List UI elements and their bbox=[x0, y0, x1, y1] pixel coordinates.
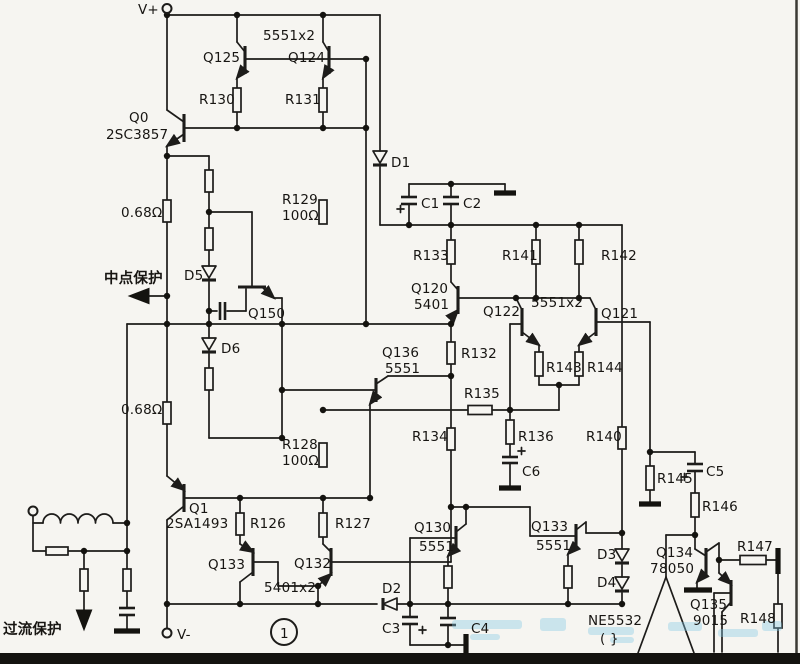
resistor-bias2-symbol bbox=[205, 228, 213, 250]
label-c5: C5 bbox=[706, 464, 724, 480]
label-r126: R126 bbox=[250, 516, 286, 532]
label-r134: R134 bbox=[412, 429, 448, 445]
resistor-r147-symbol bbox=[740, 556, 766, 565]
amplifier-schematic: V+ Q125 5551x2 Q124 R130 R131 Q0 2SC3857… bbox=[0, 0, 800, 664]
diode-d1-symbol bbox=[373, 151, 387, 165]
label-d4: D4 bbox=[597, 575, 616, 591]
diode-d3-symbol bbox=[615, 549, 629, 563]
label-d6: D6 bbox=[221, 341, 240, 357]
label-q136: Q136 bbox=[382, 345, 419, 361]
label-opamp-pin7: 7 bbox=[650, 561, 659, 577]
capacitor-c2-symbol bbox=[443, 197, 459, 204]
label-r132: R132 bbox=[461, 346, 497, 362]
resistor-q130-emitter-symbol bbox=[444, 566, 452, 588]
label-vminus: V- bbox=[177, 627, 191, 643]
label-opamp: NE5532 bbox=[588, 613, 642, 629]
label-q133-right-type: 5551 bbox=[536, 538, 571, 554]
capacitor-q150-symbol bbox=[220, 302, 225, 320]
label-r129-val: 100Ω bbox=[282, 208, 319, 224]
diode-d4-symbol bbox=[615, 577, 629, 591]
label-r143: R143 bbox=[546, 360, 582, 376]
resistor-output-parallel-symbol bbox=[46, 547, 68, 555]
label-r130: R130 bbox=[199, 92, 235, 108]
label-c6: C6 bbox=[522, 464, 540, 480]
label-q130-type: 5551 bbox=[419, 539, 454, 555]
vplus-terminal bbox=[163, 4, 172, 13]
resistor-r143-symbol bbox=[535, 352, 543, 376]
resistor-r126-symbol bbox=[236, 513, 244, 535]
label-r136: R136 bbox=[518, 429, 554, 445]
label-mirror-type: 5551x2 bbox=[263, 28, 315, 44]
label-r140: R140 bbox=[586, 429, 622, 445]
resistor-overcurrent-symbol bbox=[80, 569, 88, 591]
resistor-r146-symbol bbox=[691, 493, 699, 517]
label-q150: Q150 bbox=[248, 306, 285, 322]
label-q1: Q1 bbox=[189, 501, 209, 517]
label-d5: D5 bbox=[184, 268, 203, 284]
output-terminal bbox=[29, 507, 38, 516]
resistor-r135-symbol bbox=[468, 406, 492, 415]
label-q135: Q135 bbox=[690, 597, 727, 613]
capacitor-c1-symbol bbox=[397, 197, 417, 213]
resistor-bias1-symbol bbox=[205, 170, 213, 192]
label-c1: C1 bbox=[421, 196, 439, 212]
label-pair2-type: 5401x2 bbox=[264, 580, 316, 596]
label-r146: R146 bbox=[702, 499, 738, 515]
label-d1: D1 bbox=[391, 155, 410, 171]
label-q135-type: 9015 bbox=[693, 613, 728, 629]
label-r148: R148 bbox=[740, 611, 776, 627]
label-r135: R135 bbox=[464, 386, 500, 402]
capacitor-c6-symbol bbox=[502, 448, 525, 464]
label-res068-bot: 0.68Ω bbox=[121, 402, 162, 418]
label-c4: C4 bbox=[471, 621, 489, 637]
vminus-terminal bbox=[163, 629, 172, 638]
label-r128: R128 bbox=[282, 437, 318, 453]
capacitor-c3-symbol bbox=[402, 617, 426, 634]
bottom-border-bar bbox=[0, 653, 800, 664]
label-page-marker: 1 bbox=[280, 626, 289, 642]
label-r131: R131 bbox=[285, 92, 321, 108]
resistor-zobel-symbol bbox=[123, 569, 131, 591]
label-overcurrent-protection: 过流保护 bbox=[3, 620, 62, 638]
label-c3: C3 bbox=[382, 621, 400, 637]
label-q0: Q0 bbox=[129, 110, 149, 126]
diode-d6-symbol bbox=[202, 338, 216, 352]
resistor-r128-symbol bbox=[319, 443, 327, 467]
label-q125: Q125 bbox=[203, 50, 240, 66]
label-q133-right: Q133 bbox=[531, 519, 568, 535]
label-vplus: V+ bbox=[138, 2, 159, 18]
label-res068-top: 0.68Ω bbox=[121, 205, 162, 221]
schematic-page: V+ Q125 5551x2 Q124 R130 R131 Q0 2SC3857… bbox=[0, 0, 800, 664]
label-r147: R147 bbox=[737, 539, 773, 555]
label-opamp-sub: ( } bbox=[600, 631, 619, 647]
label-q122: Q122 bbox=[483, 304, 520, 320]
label-d3: D3 bbox=[597, 547, 616, 563]
label-q133-left: Q133 bbox=[208, 557, 245, 573]
label-r128-val: 100Ω bbox=[282, 453, 319, 469]
label-r141: R141 bbox=[502, 248, 538, 264]
label-c2: C2 bbox=[463, 196, 481, 212]
label-d2: D2 bbox=[382, 581, 401, 597]
label-q120-type: 5401 bbox=[414, 297, 449, 313]
label-r145: R145 bbox=[657, 471, 693, 487]
resistor-r132-symbol bbox=[447, 342, 455, 364]
label-r142: R142 bbox=[601, 248, 637, 264]
resistor-r129-symbol bbox=[319, 200, 327, 224]
label-q120: Q120 bbox=[411, 281, 448, 297]
diode-d5-symbol bbox=[202, 266, 216, 280]
resistor-q133-emitter-symbol bbox=[564, 566, 572, 588]
label-q134: Q134 bbox=[656, 545, 693, 561]
label-q132: Q132 bbox=[294, 556, 331, 572]
resistor-068-bottom-symbol bbox=[163, 402, 171, 424]
label-q1-type: 2SA1493 bbox=[166, 516, 228, 532]
label-q130: Q130 bbox=[414, 520, 451, 536]
label-pair-type: 5551x2 bbox=[531, 295, 583, 311]
diode-d2-symbol bbox=[383, 598, 397, 610]
label-r127: R127 bbox=[335, 516, 371, 532]
label-r133: R133 bbox=[413, 248, 449, 264]
resistor-r142-symbol bbox=[575, 240, 583, 264]
capacitor-zobel-symbol bbox=[119, 608, 135, 615]
label-q0-type: 2SC3857 bbox=[106, 127, 168, 143]
label-r129: R129 bbox=[282, 192, 318, 208]
resistor-r127-symbol bbox=[319, 513, 327, 537]
label-midpoint-protection: 中点保护 bbox=[104, 269, 163, 287]
label-q134-type: 8050 bbox=[659, 561, 694, 577]
label-q121: Q121 bbox=[601, 306, 638, 322]
label-r144: R144 bbox=[587, 360, 623, 376]
resistor-r145-symbol bbox=[646, 466, 654, 490]
label-q124: Q124 bbox=[288, 50, 325, 66]
resistor-r134-symbol bbox=[447, 428, 455, 450]
resistor-r136-symbol bbox=[506, 420, 514, 444]
resistor-bias3-symbol bbox=[205, 368, 213, 390]
resistor-068-top-symbol bbox=[163, 200, 171, 222]
label-q136-type: 5551 bbox=[385, 361, 420, 377]
